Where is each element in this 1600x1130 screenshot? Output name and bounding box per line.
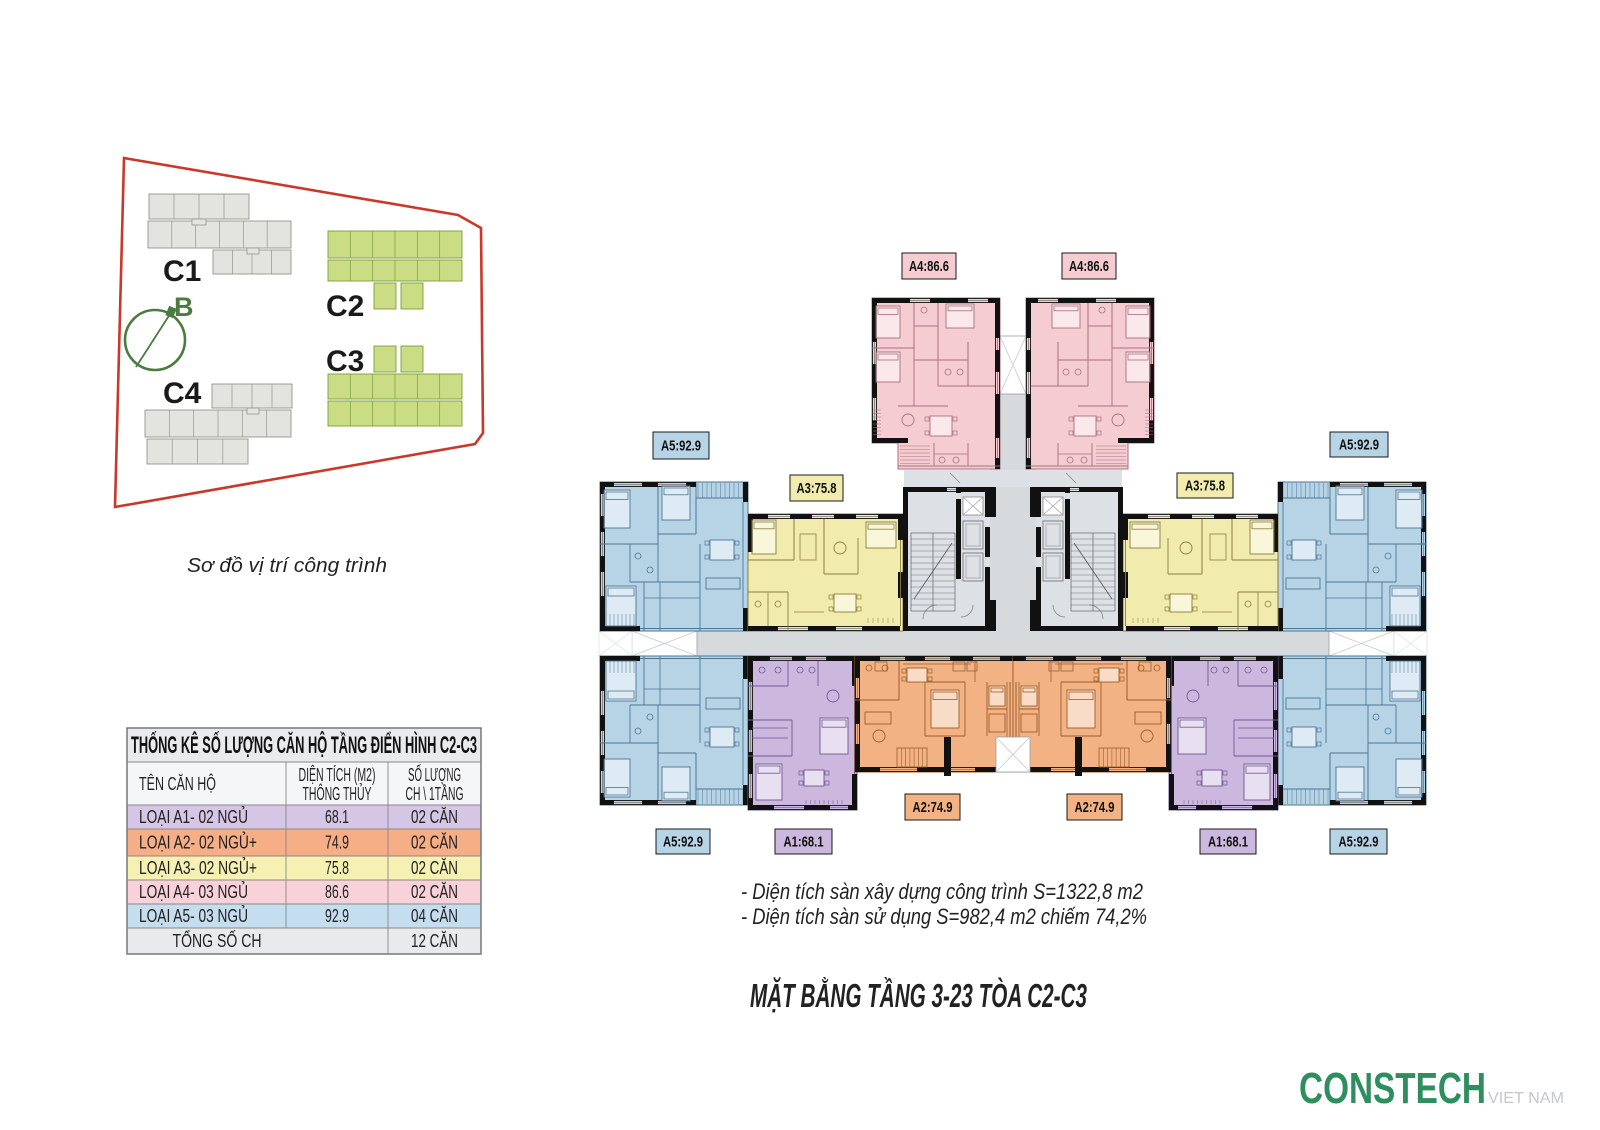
svg-text:CONSTECH: CONSTECH [1299,1064,1486,1113]
svg-text:75.8: 75.8 [325,858,349,878]
svg-text:- Diện tích sàn xây dựng công: - Diện tích sàn xây dựng công trình S=13… [741,879,1143,904]
svg-text:02 CĂN: 02 CĂN [411,882,458,902]
svg-text:02 CĂN: 02 CĂN [411,858,458,878]
svg-text:LOẠI A5- 03 NGỦ: LOẠI A5- 03 NGỦ [139,905,248,926]
svg-text:A2:74.9: A2:74.9 [913,799,953,816]
svg-text:02 CĂN: 02 CĂN [411,833,458,853]
svg-text:A3:75.8: A3:75.8 [797,480,837,497]
svg-text:THỐNG KÊ SỐ LƯỢNG CĂN HỘ TẦNG: THỐNG KÊ SỐ LƯỢNG CĂN HỘ TẦNG ĐIỂN HÌNH … [131,731,477,759]
svg-text:CH \ 1TẦNG: CH \ 1TẦNG [406,783,464,804]
svg-text:C1: C1 [163,255,201,288]
svg-text:VIET NAM: VIET NAM [1488,1090,1564,1107]
svg-text:A5:92.9: A5:92.9 [1339,834,1379,851]
svg-text:C4: C4 [163,377,202,410]
svg-text:TỔNG SỐ CH: TỔNG SỐ CH [173,930,262,951]
svg-text:LOẠI A3- 02 NGỦ+: LOẠI A3- 02 NGỦ+ [139,857,257,878]
svg-text:A1:68.1: A1:68.1 [784,834,824,851]
svg-text:A5:92.9: A5:92.9 [1339,437,1379,454]
svg-text:A4:86.6: A4:86.6 [909,258,949,275]
svg-text:86.6: 86.6 [325,882,349,902]
svg-text:12 CĂN: 12 CĂN [411,931,458,951]
svg-text:SỐ LƯỢNG: SỐ LƯỢNG [408,764,461,785]
svg-text:68.1: 68.1 [325,807,349,827]
svg-text:04 CĂN: 04 CĂN [411,906,458,926]
svg-text:A2:74.9: A2:74.9 [1075,799,1115,816]
svg-text:A3:75.8: A3:75.8 [1185,478,1225,495]
svg-text:LOẠI A4- 03 NGỦ: LOẠI A4- 03 NGỦ [139,881,248,902]
svg-text:LOẠI A1- 02 NGỦ: LOẠI A1- 02 NGỦ [139,806,248,827]
svg-text:- Diện tích sàn sử dụng S=982,: - Diện tích sàn sử dụng S=982,4 m2 chiếm… [741,904,1147,929]
svg-text:A4:86.6: A4:86.6 [1069,258,1109,275]
svg-text:C3: C3 [326,345,364,378]
svg-text:LOẠI A2- 02 NGỦ+: LOẠI A2- 02 NGỦ+ [139,832,257,853]
svg-text:C2: C2 [326,290,364,323]
svg-text:THÔNG THỦY: THÔNG THỦY [303,783,372,804]
svg-text:74.9: 74.9 [325,833,349,853]
svg-text:B: B [174,292,194,322]
svg-text:DIỆN TÍCH (M2): DIỆN TÍCH (M2) [299,765,376,785]
svg-text:92.9: 92.9 [325,906,349,926]
svg-text:Sơ đồ vị trí công trình: Sơ đồ vị trí công trình [187,555,387,577]
svg-text:A5:92.9: A5:92.9 [661,438,701,455]
svg-text:TÊN CĂN HỘ: TÊN CĂN HỘ [139,773,216,794]
svg-text:A1:68.1: A1:68.1 [1208,834,1248,851]
svg-text:MẶT BẰNG TẦNG 3-23 TÒA C2-C3: MẶT BẰNG TẦNG 3-23 TÒA C2-C3 [750,977,1087,1014]
svg-text:A5:92.9: A5:92.9 [663,834,703,851]
svg-text:02 CĂN: 02 CĂN [411,807,458,827]
